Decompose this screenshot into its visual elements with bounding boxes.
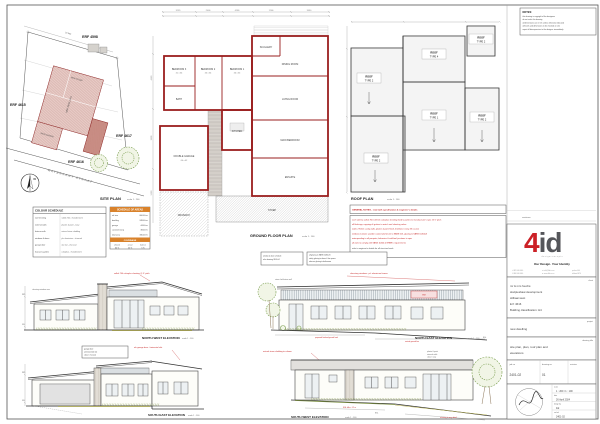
roof-label: TYPE 2: [478, 119, 487, 122]
table-cell: balance: [140, 244, 146, 246]
table-cell: 600.00 m²: [139, 214, 148, 217]
room-label: BEDROOM 3: [172, 68, 187, 71]
dim-text: 3 970: [176, 10, 181, 12]
client-label: client: [588, 279, 593, 282]
note-line: waterproofing to all parapets, balconies…: [352, 237, 412, 240]
room-label: ENSUITE: [285, 176, 296, 179]
note-line: obscure glazing to bathrooms: [309, 260, 331, 263]
level-label: NGL: [375, 413, 378, 415]
dim-text: 3 610: [307, 10, 312, 12]
room-label: BEDROOM 1: [230, 68, 245, 71]
fascia-band: [291, 360, 473, 370]
table-cell: garage door: [35, 244, 46, 247]
dim-text: 5 250: [151, 191, 153, 196]
note-line: walls: 270mm cavity walls, plaster & pai…: [352, 228, 420, 231]
level-label: FFL: [22, 324, 25, 326]
date-value: 26 April 2024: [556, 399, 571, 402]
note-line: windows & doors: powder coated aluminium…: [352, 232, 428, 235]
elevation-scale: scale 1 : 100: [345, 417, 357, 419]
annotation: colour: ivory: [427, 356, 436, 359]
red-annotation: natural stone cladding to column: [263, 350, 292, 353]
window: [178, 306, 188, 315]
project-label: project: [587, 320, 593, 323]
revisions-label: revisions: [522, 216, 532, 219]
room-label: DRIVEWAY: [178, 214, 191, 217]
annotation: clerestory windows over: [32, 288, 50, 291]
annotation: stone clad feature wall: [275, 278, 292, 281]
roof-label: TYPE 2: [372, 160, 381, 163]
note-line: report all discrepancies to the designer…: [523, 28, 564, 31]
table-cell: saflok 700 - thunderstorm: [62, 217, 84, 220]
room-label: DOUBLE GARAGE: [174, 155, 195, 158]
cad-ref-value: 2401-02: [556, 416, 565, 419]
red-dim-text: retaining to eng. detail: [440, 416, 457, 419]
table-cell: windows & doors: [35, 237, 49, 240]
level-label: NGL: [483, 337, 486, 339]
general-notes: GENERAL NOTES - read with specification …: [350, 205, 506, 258]
table-cell: dwelling: [112, 220, 119, 222]
logo-subtitle: d e s i g n c o n c e p t s: [541, 255, 562, 258]
project-name: new dwelling: [510, 327, 528, 331]
revision-label: revision: [570, 364, 577, 366]
logo-tagline: Our Design. Your Identity: [534, 262, 570, 266]
cad-ref-label: cad ref: [554, 412, 559, 414]
level-label: WPL: [22, 372, 26, 374]
note-line: all flashings, cappings & gutters to mat…: [352, 223, 407, 226]
table-cell: 5 %: [141, 248, 145, 250]
room-size: 3.1 x 3.6: [176, 73, 183, 75]
red-dim-text: natural ground line: [405, 340, 419, 343]
job-no-label: job no: [509, 364, 516, 366]
logo-contact: w: www.4id.co.za: [542, 273, 554, 275]
window: [405, 377, 416, 388]
coverage-title: COVERAGE: [124, 239, 137, 242]
logo-contact: e: info@4id.co.za: [542, 270, 554, 272]
table-cell: garage: [112, 224, 118, 227]
elevation-title: NORTH EAST ELEVATION: [415, 336, 452, 340]
roof-plan-scale: scale 1 : 100: [387, 199, 400, 201]
elevation-scale: scale 1 : 100: [188, 415, 200, 417]
elevation-scale: scale 1 : 100: [468, 338, 480, 340]
notes-title: NOTES:: [523, 11, 533, 14]
erf-number-left: ERF 4615: [10, 103, 26, 107]
client-line: skulpiesbaai development: [510, 290, 542, 294]
room-label: MAIN BEDROOM: [281, 139, 300, 142]
note-line: all levels and dimensions to be checked …: [523, 25, 560, 28]
room-label: LIVING ROOM: [282, 98, 298, 101]
table-cell: alu slat - charcoal: [62, 244, 77, 247]
room-label: STOEP: [268, 209, 276, 212]
shrub-icon: [281, 326, 286, 331]
colour-schedule-table: COLOUR SCHEDULE roof sheeting saflok 700…: [33, 207, 106, 257]
job-no-value: 2401-02: [510, 373, 522, 377]
note-line: all dimensions are in mm unless otherwis…: [523, 21, 564, 24]
note-line: do not scale this drawing: [523, 18, 543, 21]
table-title: COLOUR SCHEDULE: [35, 209, 63, 213]
glazed-door: [114, 300, 144, 328]
red-annotation: clerestory windows - p/c aluminium frame…: [350, 272, 388, 275]
logo-contact: f: 086 000 0000: [512, 273, 523, 275]
table-cell: 60 %: [115, 248, 120, 250]
room-size: 3.3 x 3.6: [205, 73, 212, 75]
client-line: mr & mrs fouché: [510, 284, 531, 288]
note-line: safety glazing to doors & low panes: [309, 257, 336, 260]
dim-text: 1 900: [269, 10, 274, 12]
outbuilding: [88, 44, 99, 52]
roof-label: ROOF: [372, 156, 380, 159]
table-cell: 38.00 m²: [141, 229, 149, 232]
floor-plan-title: GROUND FLOOR PLAN: [250, 234, 293, 238]
roof-label: TYPE 1: [430, 117, 439, 120]
sheet-canvas: 33 980 NEW STOEP NEW DWELLING NEW GARAGE…: [0, 0, 600, 424]
erf-number-main: ERF 4616: [68, 160, 84, 164]
table-cell: feature walls: [35, 230, 46, 233]
table-cell: 55 %: [128, 248, 133, 250]
table-cell: allowed: [114, 244, 120, 246]
areas-schedule-table: SCHEDULE OF AREAS erf size 600.00 m² dwe…: [110, 207, 150, 250]
floor-plan-scale: scale 1 : 100: [302, 236, 315, 238]
note-line: alu horizontal slat: [84, 351, 98, 354]
logo-contact: po box 000: [572, 270, 580, 272]
erf-number-top: ERF 4598: [82, 35, 98, 39]
room-label: BATH: [176, 98, 182, 101]
red-dim-text: proposed finished ground level: [315, 336, 339, 339]
elevation-title: SOUTH WEST ELEVATION: [291, 415, 329, 419]
table-frame: [110, 207, 150, 249]
dim-text: 4 180: [235, 10, 240, 12]
table-cell: plaster & paint - ivory: [62, 223, 80, 226]
table-cell: 248.00 m²: [139, 219, 148, 222]
window: [431, 307, 443, 319]
scale-value: 1 : 200 / 1 : 100: [556, 390, 573, 393]
red-annotation: alu garage door - horizontal slat: [134, 346, 163, 349]
note-line: window & door schedule: [263, 255, 281, 258]
roof-label: ROOF: [478, 115, 486, 118]
roof-label: ROOF: [365, 76, 373, 79]
annotation: plaster & paint: [427, 350, 438, 353]
room-label: DINING ROOM: [282, 63, 298, 66]
note-line: roof: safintra saflok 700 0.53mm colorpl…: [352, 219, 441, 222]
window: [164, 306, 174, 315]
notes-box: NOTES: this drawing is copyright of the …: [520, 8, 596, 35]
site-plan-scale: scale 1 : 200: [127, 199, 140, 201]
note-line: garage door:: [84, 348, 94, 351]
dim-text: 2 400: [206, 10, 211, 12]
logo-id: id: [539, 227, 562, 258]
red-annotation: saflok 700 colorplus sheeting @ 5° pitch: [114, 272, 150, 275]
notes-body-box: [350, 216, 506, 258]
table-cell: fascias & gutters: [35, 251, 49, 254]
elevation-title: NORTH WEST ELEVATION: [142, 336, 180, 340]
table-cell: 330.00 m²: [139, 233, 148, 236]
window: [150, 306, 160, 315]
table-title: SCHEDULE OF AREAS: [117, 209, 143, 212]
red-highlight-label: W09: [422, 295, 426, 297]
drawing-title-line: elevations: [510, 351, 524, 355]
passage-strip: [208, 110, 222, 196]
table-cell: covered stoep: [112, 229, 124, 232]
notes-header: GENERAL NOTES - read with specification …: [352, 209, 418, 212]
table-cell: p/c aluminium - charcoal: [62, 237, 83, 240]
roof-label: TYPE 4: [430, 56, 439, 59]
client-line: Building classification: H4: [510, 308, 542, 312]
client-line: stilbaai west: [510, 296, 525, 300]
roof-label: ROOF: [430, 52, 438, 55]
design-by-label: design by: [554, 404, 561, 406]
room-size: 3.6 x 3.3: [234, 73, 241, 75]
roof-label: TYPE 2: [365, 80, 374, 83]
room-label: SCULLERY: [260, 46, 273, 49]
table-cell: erf size: [112, 214, 118, 217]
north-label: N: [34, 177, 36, 181]
note-line: all glazing to SANS 10400-N: [309, 254, 331, 257]
elevation-title: SOUTH EAST ELEVATION: [148, 413, 185, 417]
room-size: 6.0 x 6.2: [181, 160, 188, 162]
client-line: Erf: 4616: [510, 302, 522, 306]
drawing-no-label: drawing no: [542, 364, 553, 366]
table-cell: external walls: [35, 223, 47, 226]
scale-label: scale: [554, 387, 558, 389]
annotation: external walls: [427, 353, 437, 356]
drawing-title-label: drawing title: [582, 339, 594, 342]
table-cell: total area: [112, 233, 121, 236]
level-label: WPL: [22, 294, 26, 296]
dim-text: 3 600: [151, 136, 153, 141]
room-label: KITCHEN: [232, 130, 243, 133]
table-cell: 44.00 m²: [141, 224, 149, 227]
drawing-sheet: 33 980 NEW STOEP NEW DWELLING NEW GARAGE…: [0, 0, 600, 424]
roof-plan-title: ROOF PLAN: [351, 197, 374, 201]
erf-number-right: ERF 4617: [116, 134, 132, 138]
level-label: FFL: [22, 400, 25, 402]
drawing-title-line: site plan, plan, roof plan and: [510, 345, 548, 349]
elevation-scale: scale 1 : 100: [182, 338, 194, 340]
drawing-no-value: 01: [542, 373, 546, 377]
window: [329, 375, 337, 382]
note-line: refer drawing 2401-04: [263, 258, 280, 261]
dim-text: 4 950: [151, 76, 153, 81]
site-plan-title: SITE PLAN: [100, 196, 121, 201]
roof-label: TYPE 2: [477, 41, 486, 44]
table-cell: roof sheeting: [35, 217, 46, 220]
roof-label: ROOF: [477, 37, 485, 40]
table-cell: actual: [128, 243, 133, 246]
red-dim-text: NGL falls ± 1.2 m: [343, 407, 357, 409]
note-line: this drawing is copyright of the designe…: [523, 15, 556, 18]
note-line: all work to comply with SANS 10400 & NHB…: [352, 242, 406, 245]
table-cell: natural stone cladding: [62, 230, 81, 233]
note-line: refer to engineer's details for all stru…: [352, 247, 393, 250]
table-cell: colorplus - thunderstorm: [62, 251, 83, 254]
outbuilding: [100, 47, 107, 53]
window: [411, 307, 423, 319]
svg-text:4id: 4id: [524, 227, 561, 258]
room-label: BEDROOM 2: [201, 68, 216, 71]
north-arrow-icon: N: [21, 174, 39, 192]
roof-label: ROOF: [430, 113, 438, 116]
note-line: colour: charcoal: [84, 354, 97, 357]
